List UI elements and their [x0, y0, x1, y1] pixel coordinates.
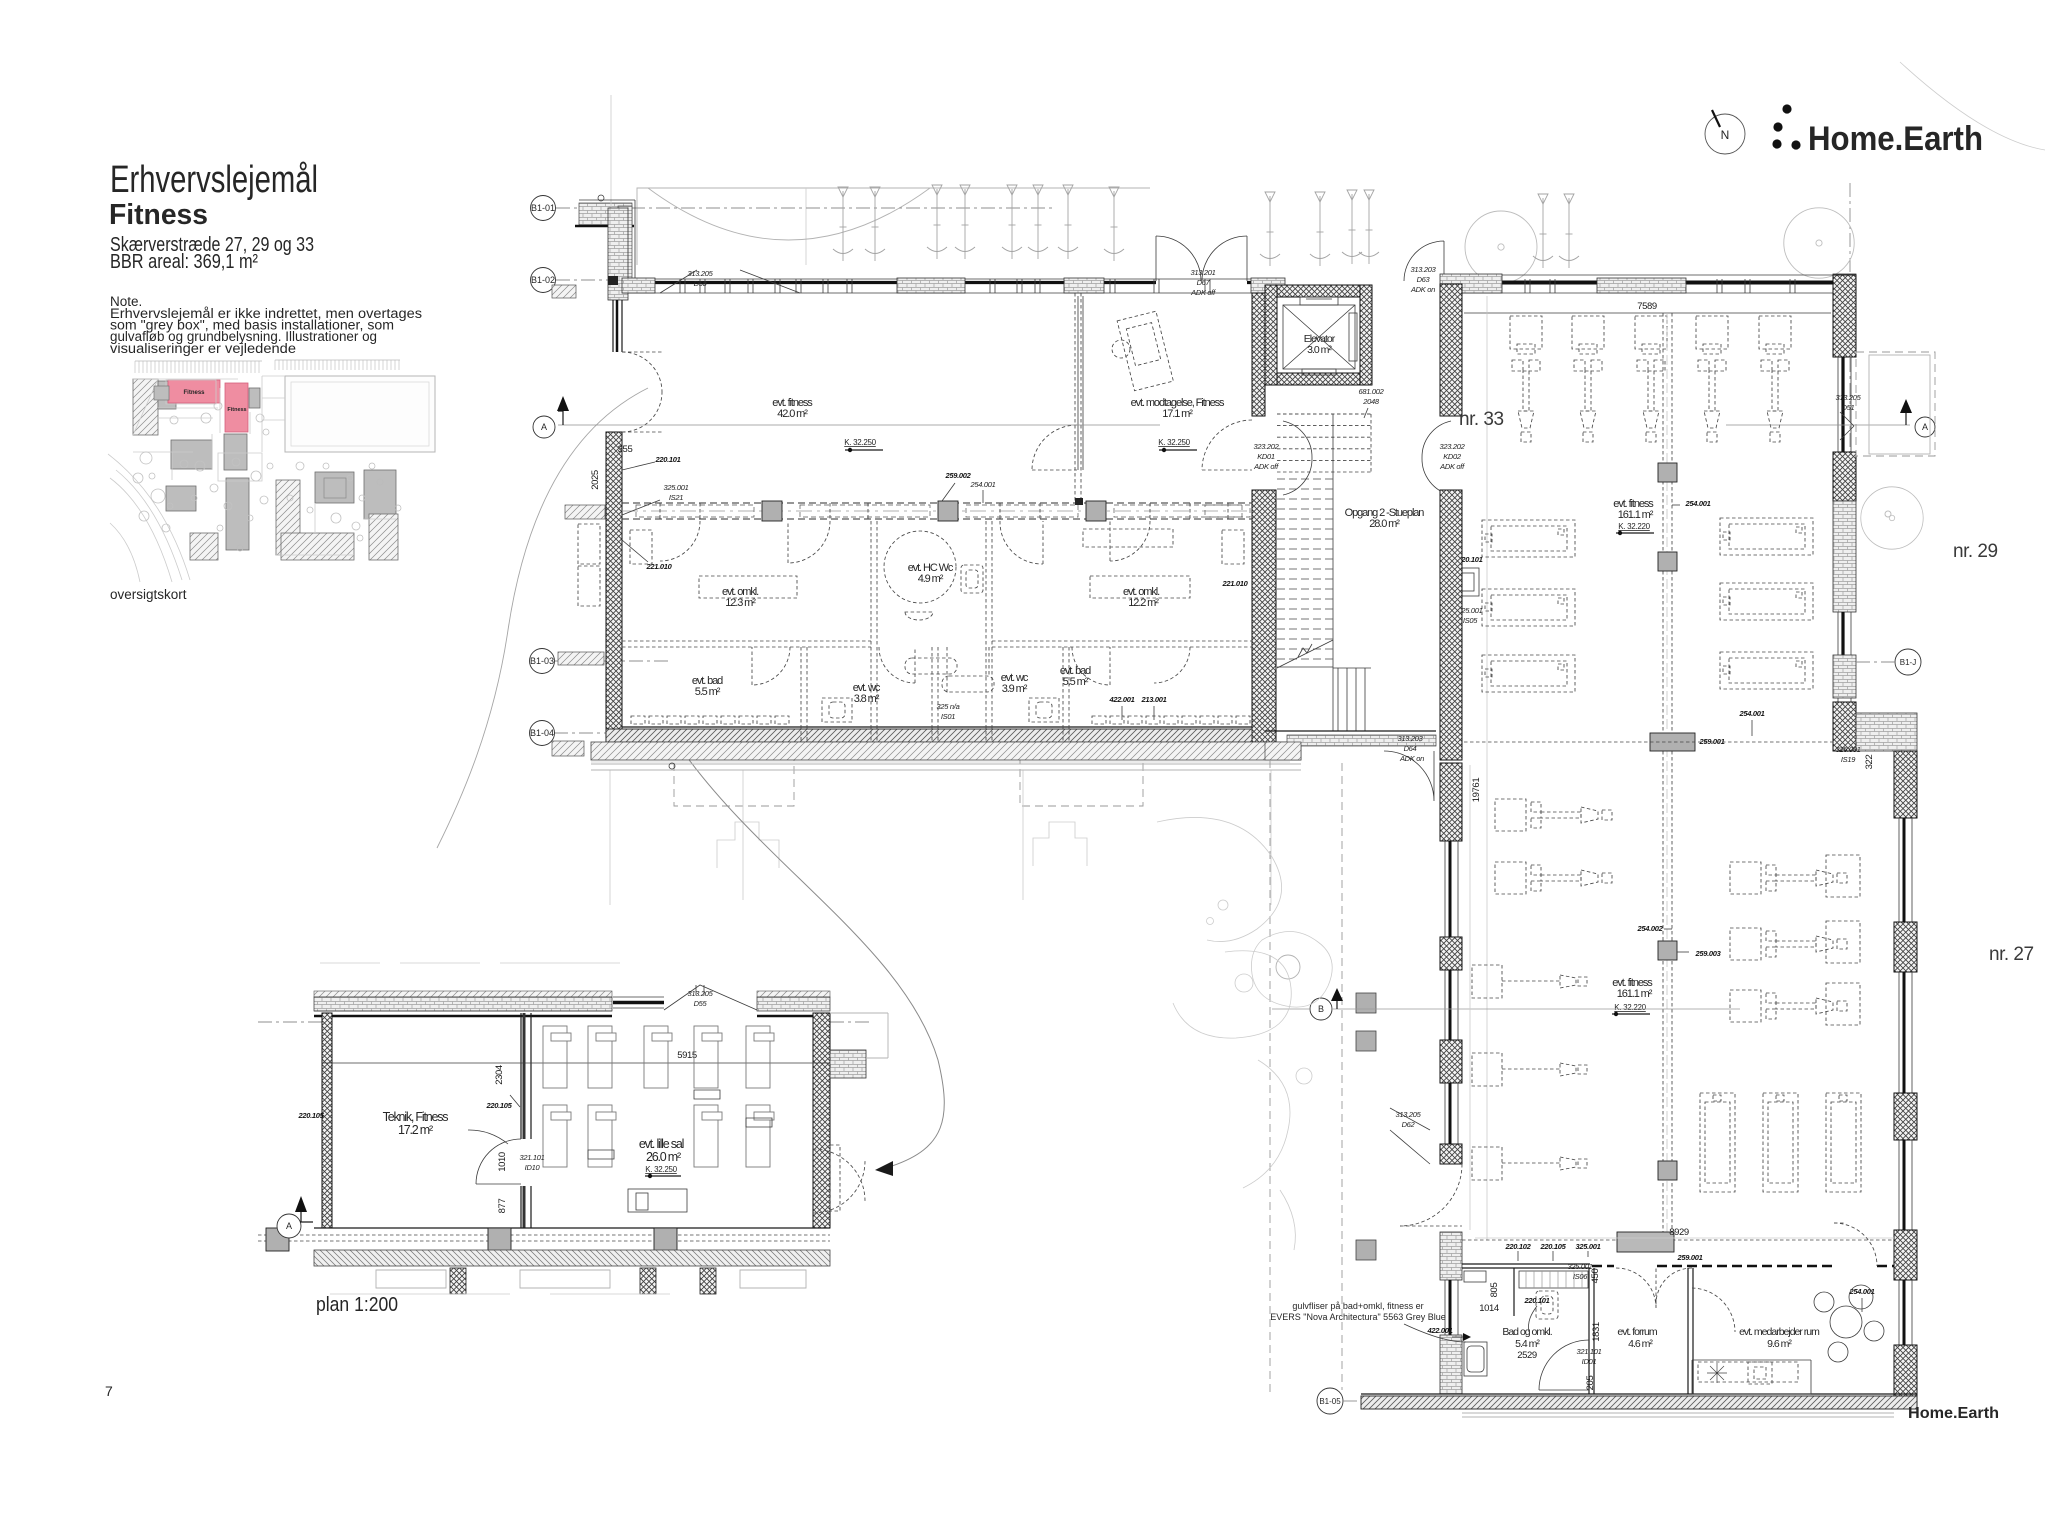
svg-text:42.0 m²: 42.0 m² [777, 408, 808, 420]
svg-text:evt. medarbejder rum: evt. medarbejder rum [1739, 1326, 1820, 1338]
svg-text:B1-01: B1-01 [531, 203, 555, 213]
svg-text:D50: D50 [694, 279, 708, 288]
svg-text:7: 7 [105, 1383, 113, 1399]
svg-text:681.002: 681.002 [1358, 387, 1384, 396]
svg-text:313.205: 313.205 [687, 989, 713, 998]
svg-text:355: 355 [618, 444, 633, 455]
svg-text:12.2 m²: 12.2 m² [1128, 597, 1159, 609]
svg-text:313.203: 313.203 [1410, 265, 1436, 274]
svg-text:3.8 m²: 3.8 m² [854, 693, 880, 705]
svg-text:1010: 1010 [497, 1152, 508, 1172]
svg-text:3.0 m²: 3.0 m² [1307, 344, 1332, 356]
svg-text:ADK off: ADK off [1253, 462, 1279, 471]
svg-text:B: B [1318, 1004, 1324, 1014]
svg-text:12.3 m²: 12.3 m² [725, 597, 756, 609]
svg-text:313.205: 313.205 [1835, 393, 1861, 402]
svg-text:254.001: 254.001 [1738, 709, 1764, 718]
svg-text:evt. forrum: evt. forrum [1617, 1326, 1657, 1338]
svg-text:17.2 m²: 17.2 m² [398, 1123, 433, 1137]
svg-text:3.9 m²: 3.9 m² [1002, 683, 1028, 695]
svg-text:nr. 33: nr. 33 [1459, 409, 1504, 430]
svg-text:220.105: 220.105 [485, 1101, 512, 1110]
svg-text:205: 205 [1585, 1376, 1596, 1391]
svg-text:325.001: 325.001 [1575, 1242, 1600, 1251]
svg-text:1014: 1014 [1479, 1303, 1499, 1314]
svg-text:B1-04: B1-04 [530, 728, 554, 738]
svg-text:221.010: 221.010 [645, 562, 672, 571]
svg-text:321.101: 321.101 [1576, 1347, 1601, 1356]
svg-text:Home.Earth: Home.Earth [1808, 120, 1983, 158]
svg-text:IS05: IS05 [1463, 616, 1478, 625]
svg-text:N: N [1721, 128, 1730, 142]
svg-text:259.001: 259.001 [1676, 1253, 1702, 1262]
svg-text:K. 32.250: K. 32.250 [1158, 438, 1190, 447]
svg-text:8929: 8929 [1669, 1227, 1689, 1238]
svg-text:nr. 29: nr. 29 [1953, 541, 1998, 562]
svg-text:221.010: 221.010 [1221, 579, 1248, 588]
svg-text:ADK off: ADK off [1190, 288, 1216, 297]
svg-text:325.001: 325.001 [1835, 745, 1860, 754]
svg-text:1831: 1831 [1591, 1322, 1602, 1342]
svg-text:BBR areal: 369,1 m²: BBR areal: 369,1 m² [110, 251, 258, 273]
svg-text:313.203: 313.203 [1397, 734, 1423, 743]
svg-text:321.101: 321.101 [519, 1153, 544, 1162]
svg-text:7589: 7589 [1637, 301, 1657, 312]
svg-text:evt. lille sal: evt. lille sal [639, 1137, 684, 1151]
svg-text:220.105: 220.105 [297, 1111, 324, 1120]
svg-text:Home.Earth: Home.Earth [1908, 1405, 1999, 1422]
svg-text:4.9 m²: 4.9 m² [918, 573, 944, 585]
svg-text:19761: 19761 [1471, 778, 1482, 803]
svg-text:ADK on: ADK on [1410, 285, 1435, 294]
svg-text:2529: 2529 [1517, 1350, 1537, 1361]
svg-text:B1-J: B1-J [1900, 658, 1916, 667]
svg-text:B1-05: B1-05 [1319, 1397, 1341, 1406]
svg-text:ID01: ID01 [1582, 1357, 1597, 1366]
svg-text:9.6 m²: 9.6 m² [1767, 1338, 1792, 1350]
svg-text:A: A [1922, 422, 1928, 432]
svg-text:B1-03: B1-03 [530, 656, 554, 666]
svg-text:259.001: 259.001 [1698, 737, 1724, 746]
svg-text:D51: D51 [1842, 403, 1855, 412]
svg-text:422.001: 422.001 [1108, 695, 1134, 704]
svg-text:ID10: ID10 [525, 1163, 541, 1172]
svg-text:259.002: 259.002 [944, 471, 971, 480]
svg-text:ADK off: ADK off [1439, 462, 1465, 471]
svg-text:220.101: 220.101 [654, 455, 680, 464]
svg-text:220.105: 220.105 [1539, 1242, 1566, 1251]
svg-text:B1-02: B1-02 [531, 275, 555, 285]
svg-text:325 n/a: 325 n/a [937, 702, 960, 711]
svg-text:Fitness: Fitness [183, 390, 205, 396]
svg-text:gulvfliser på bad+omkl, fitnes: gulvfliser på bad+omkl, fitness er [1292, 1301, 1423, 1311]
svg-text:A: A [541, 422, 547, 432]
svg-text:213.001: 213.001 [1140, 695, 1166, 704]
svg-text:5.5 m²: 5.5 m² [1063, 676, 1089, 688]
svg-text:877: 877 [497, 1199, 508, 1214]
svg-text:EVERS "Nova Architectura" 5563: EVERS "Nova Architectura" 5563 Grey Blue [1270, 1312, 1445, 1322]
svg-text:422.001: 422.001 [1426, 1326, 1452, 1335]
svg-text:254.001: 254.001 [969, 480, 995, 489]
svg-text:325.001: 325.001 [663, 483, 688, 492]
svg-text:220.101: 220.101 [1523, 1296, 1549, 1305]
svg-text:313.205: 313.205 [1395, 1110, 1421, 1119]
svg-text:Erhvervslejemål: Erhvervslejemål [110, 159, 318, 201]
svg-text:2048: 2048 [1362, 397, 1380, 406]
svg-text:805: 805 [1489, 1283, 1500, 1298]
svg-text:5.5 m²: 5.5 m² [695, 686, 721, 698]
svg-text:K. 32.250: K. 32.250 [645, 1165, 677, 1174]
svg-text:A: A [286, 1221, 292, 1231]
svg-text:26.0 m²: 26.0 m² [646, 1150, 681, 1164]
svg-text:plan 1:200: plan 1:200 [316, 1294, 398, 1316]
svg-text:IS01: IS01 [941, 712, 955, 721]
svg-text:D67: D67 [1197, 278, 1211, 287]
svg-text:323.202: 323.202 [1253, 442, 1279, 451]
svg-text:259.003: 259.003 [1694, 949, 1721, 958]
svg-text:IS06: IS06 [1573, 1272, 1588, 1281]
svg-text:323.202: 323.202 [1439, 442, 1465, 451]
svg-text:Bad og omkl.: Bad og omkl. [1502, 1326, 1551, 1338]
svg-text:K. 32.250: K. 32.250 [844, 438, 876, 447]
svg-text:IS19: IS19 [1841, 755, 1856, 764]
svg-text:2304: 2304 [494, 1065, 505, 1085]
svg-text:17.1 m²: 17.1 m² [1162, 408, 1193, 420]
svg-text:ADK on: ADK on [1399, 754, 1424, 763]
svg-text:161.1 m²: 161.1 m² [1618, 509, 1654, 521]
svg-text:254.002: 254.002 [1636, 924, 1663, 933]
svg-text:KD01: KD01 [1257, 452, 1275, 461]
svg-text:254.001: 254.001 [1684, 499, 1710, 508]
svg-text:K. 32.220: K. 32.220 [1614, 1003, 1646, 1012]
svg-text:nr. 27: nr. 27 [1989, 944, 2034, 965]
svg-text:Teknik, Fitness: Teknik, Fitness [383, 1110, 449, 1124]
svg-text:KD02: KD02 [1443, 452, 1462, 461]
svg-text:D55: D55 [694, 999, 708, 1008]
svg-text:IS21: IS21 [669, 493, 683, 502]
svg-text:161.1 m²: 161.1 m² [1617, 988, 1653, 1000]
svg-text:D64: D64 [1404, 744, 1417, 753]
svg-text:visualiseringer er vejledende: visualiseringer er vejledende [110, 341, 296, 356]
svg-text:313.201: 313.201 [1190, 268, 1215, 277]
svg-text:D63: D63 [1417, 275, 1431, 284]
svg-text:450: 450 [1590, 1269, 1601, 1284]
svg-text:K. 32.220: K. 32.220 [1618, 522, 1650, 531]
svg-text:oversigtskort: oversigtskort [110, 587, 187, 602]
svg-text:4.6 m²: 4.6 m² [1628, 1338, 1653, 1350]
svg-text:2025: 2025 [590, 470, 601, 490]
svg-text:325.001: 325.001 [1567, 1262, 1592, 1271]
svg-text:Fitness: Fitness [109, 199, 208, 231]
svg-text:Fitness: Fitness [227, 407, 246, 413]
svg-text:220.102: 220.102 [1504, 1242, 1531, 1251]
svg-text:28.0 m²: 28.0 m² [1369, 518, 1400, 530]
svg-text:5.4 m²: 5.4 m² [1515, 1338, 1540, 1350]
svg-text:322: 322 [1864, 755, 1875, 770]
